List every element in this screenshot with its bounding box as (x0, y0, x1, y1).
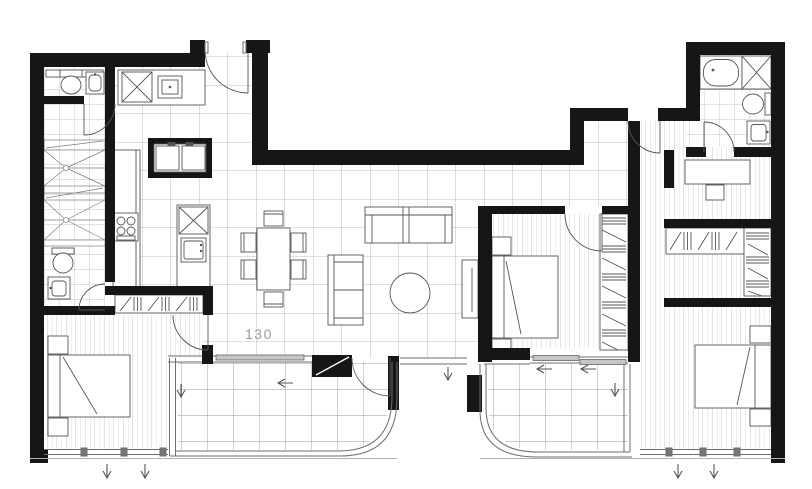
stove (114, 213, 138, 241)
floor-plan-canvas: 130 (0, 0, 812, 489)
sliding-door-panel (580, 360, 626, 365)
wall-segment (30, 53, 192, 67)
window-mullion (734, 448, 740, 456)
loveseat (328, 255, 363, 325)
wall-segment (734, 147, 771, 157)
wardrobe-shelves (744, 228, 771, 296)
wall-segment (203, 295, 213, 315)
window-mullion (666, 448, 672, 456)
arrow-down-icon (141, 464, 149, 478)
wall-segment (252, 150, 584, 165)
coffee-table (390, 273, 430, 313)
appliance (158, 76, 182, 98)
nightstand (750, 326, 771, 343)
laundry-fixtures (118, 70, 205, 105)
nightstand (48, 418, 68, 436)
wardrobe (600, 214, 628, 350)
dining-chair (241, 260, 256, 279)
glass-wall (170, 358, 176, 456)
sink (747, 121, 770, 144)
wall-segment (30, 53, 44, 463)
arrow-down-icon (444, 367, 452, 380)
storage-divider-band-3 (44, 240, 105, 246)
wall-segment (570, 108, 628, 121)
kitchen-island (177, 205, 210, 287)
dining-chair (291, 233, 306, 252)
wall-segment (44, 96, 84, 104)
wall-segment (30, 449, 48, 463)
wall-segment (664, 219, 771, 228)
bathtub (700, 56, 742, 89)
window-mullion (121, 448, 127, 456)
bed (492, 256, 558, 338)
window-mullion (81, 448, 87, 456)
nightstand (492, 237, 511, 255)
wall-segment (686, 42, 785, 55)
wall-segment (478, 206, 565, 214)
dining-chair (241, 233, 256, 252)
desk (685, 160, 750, 184)
bed (695, 345, 771, 408)
arrow-down-icon (103, 464, 111, 478)
desk-chair (703, 184, 727, 200)
wall-segment (252, 40, 268, 165)
bed (48, 355, 130, 417)
shower (742, 56, 771, 89)
window-mullion (700, 448, 706, 456)
door-jamb (243, 42, 246, 53)
window (400, 358, 467, 364)
tv-bench (462, 260, 478, 318)
dining-table (257, 228, 290, 290)
arrow-down-icon (710, 464, 718, 478)
island-sink (181, 238, 206, 262)
toilet (743, 93, 772, 115)
dining-chair (264, 211, 283, 226)
hall-nook-floor (584, 121, 628, 206)
nightstand (48, 336, 68, 354)
wall-segment (202, 345, 213, 364)
wardrobe (115, 295, 203, 313)
sink (48, 277, 70, 299)
dining-chair (291, 260, 306, 279)
entry-floor (205, 53, 252, 165)
wall-segment (190, 40, 205, 67)
storage-cabinet (148, 138, 212, 178)
washing-machine (122, 72, 152, 102)
living-strip-floor (478, 165, 584, 206)
dining-chair (264, 292, 283, 307)
sliding-door-panel (216, 355, 304, 360)
window (44, 450, 168, 455)
wall-segment (478, 206, 492, 362)
bathroom-right-floor-ext (686, 121, 700, 147)
wall-segment (664, 298, 771, 307)
area-label: 130 (245, 326, 273, 342)
wall-segment (628, 121, 640, 362)
toilet (60, 70, 82, 94)
sliding-door-panel (533, 356, 579, 361)
wall-segment (686, 147, 706, 157)
window-mullion (160, 448, 166, 456)
wall-segment (105, 286, 213, 295)
wardrobe (666, 228, 744, 254)
arrow-down-icon (674, 464, 682, 478)
wall-segment (771, 42, 785, 463)
toilet (52, 248, 74, 273)
sofa (365, 207, 452, 243)
wall-segment (664, 150, 674, 188)
balcony-right-floor (488, 364, 628, 450)
nightstand (750, 409, 771, 426)
sink (86, 72, 104, 94)
wall-segment (478, 348, 530, 360)
floor-plan-page: 130 (0, 0, 812, 489)
wall-segment (105, 67, 115, 282)
